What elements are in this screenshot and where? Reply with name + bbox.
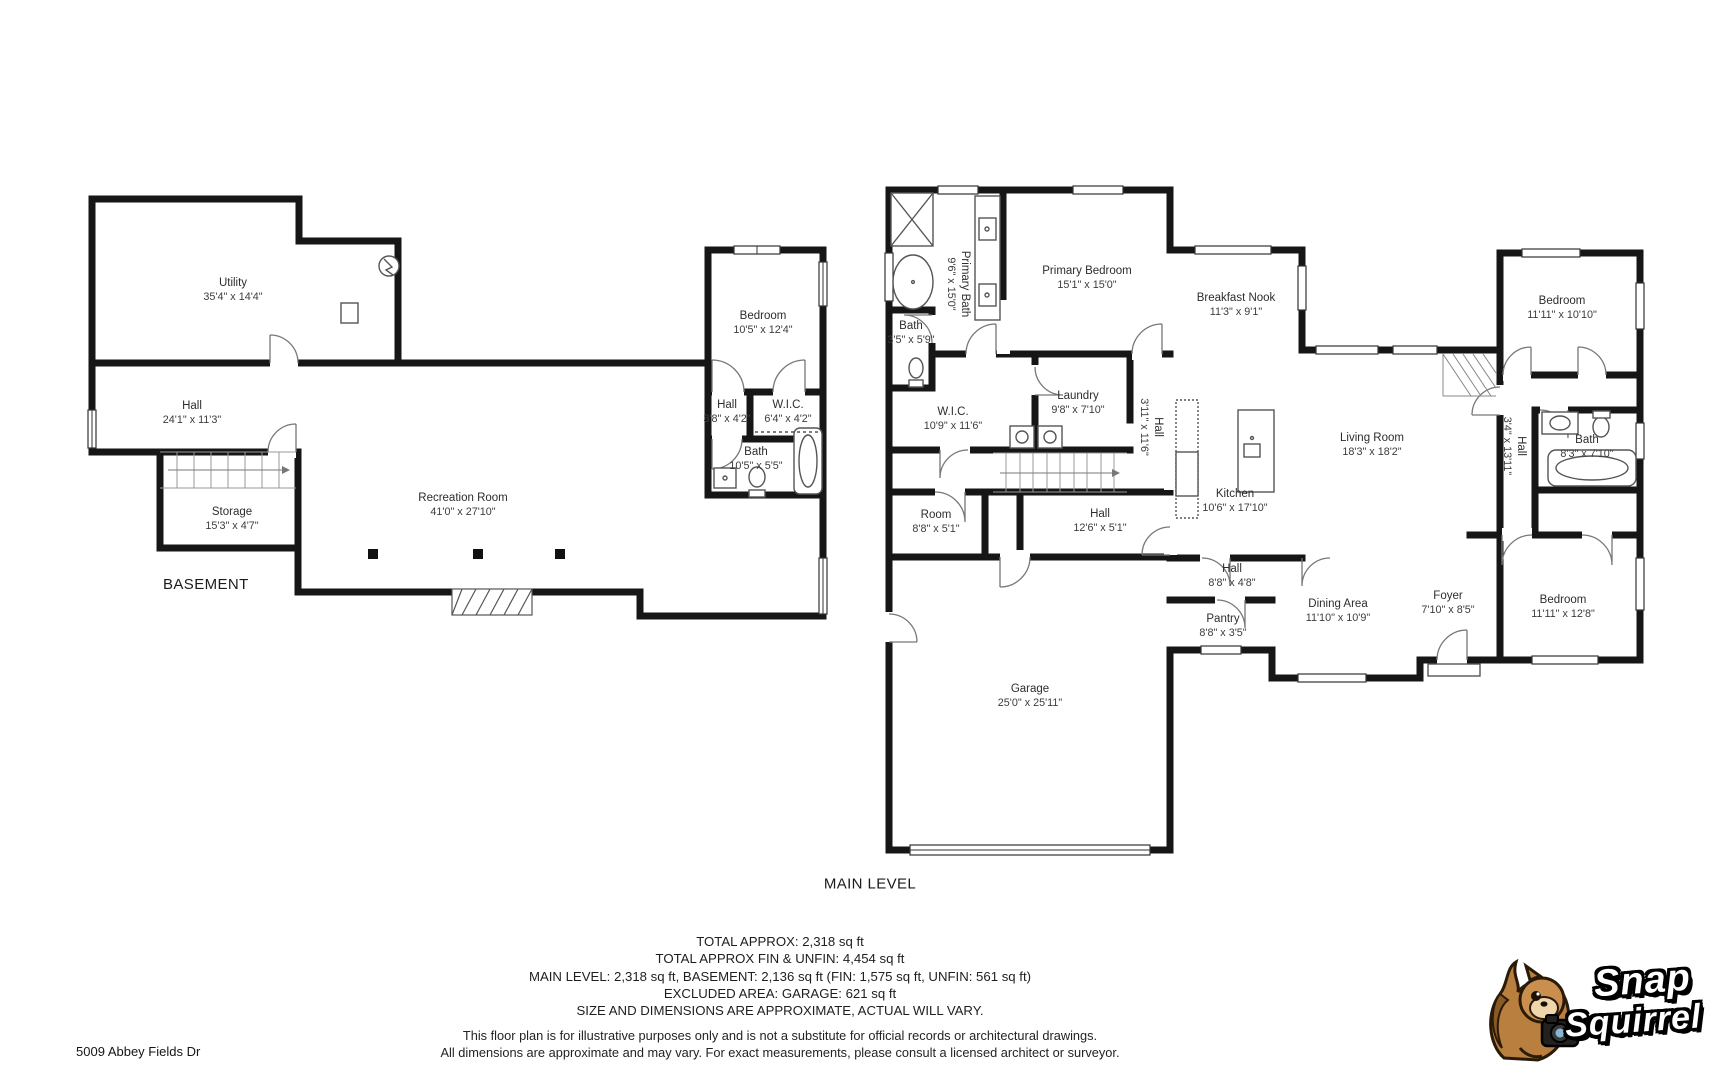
area-summary: TOTAL APPROX: 2,318 sq ft TOTAL APPROX F… — [529, 933, 1031, 1019]
room-label-living-room: Living Room18'3" x 18'2" — [1340, 431, 1404, 459]
summary-excluded: EXCLUDED AREA: GARAGE: 621 sq ft — [529, 985, 1031, 1002]
support-post-icons — [368, 549, 565, 559]
summary-approximate: SIZE AND DIMENSIONS ARE APPROXIMATE, ACT… — [529, 1002, 1031, 1019]
toilet-icon — [909, 358, 923, 378]
room-label-bedroom-top: Bedroom11'11" x 10'10" — [1527, 294, 1597, 322]
room-label-primary-bedroom: Primary Bedroom15'1" x 15'0" — [1042, 264, 1131, 292]
room-label-basement-wic: W.I.C.6'4" x 4'2" — [764, 398, 811, 426]
summary-total: TOTAL APPROX: 2,318 sq ft — [529, 933, 1031, 950]
disclaimer-line-2: All dimensions are approximate and may v… — [440, 1044, 1119, 1061]
main-level-walls — [889, 190, 1640, 850]
room-label-main-hall: Hall12'6" x 5'1" — [1073, 507, 1126, 535]
stairs-icon-main — [993, 453, 1127, 492]
logo-word-squirrel: Squirrel — [1563, 997, 1702, 1045]
room-label-main-hall-2: Hall8'8" x 4'8" — [1208, 562, 1255, 590]
room-label-bath-right: Bath8'3" x 7'10" — [1560, 433, 1613, 461]
window-icons — [88, 186, 1644, 855]
room-label-hall-right-vertical: Hall3'4" x 13'11" — [1500, 417, 1528, 475]
room-label-basement-bedroom: Bedroom10'5" x 12'4" — [733, 309, 792, 337]
room-label-laundry: Laundry9'8" x 7'10" — [1051, 389, 1104, 417]
room-label-room: Room8'8" x 5'1" — [912, 508, 959, 536]
basement-bulkhead-hatch — [452, 589, 532, 615]
room-label-recreation-room: Recreation Room41'0" x 27'10" — [418, 491, 507, 519]
disclaimer: This floor plan is for illustrative purp… — [440, 1027, 1119, 1061]
room-label-basement-hall-2: Hall3'8" x 4'2" — [703, 398, 750, 426]
disclaimer-line-1: This floor plan is for illustrative purp… — [440, 1027, 1119, 1044]
snap-squirrel-logo: Snap Squirrel — [1486, 942, 1701, 1070]
floorplan-drawing — [0, 0, 1729, 1080]
room-label-dining-area: Dining Area11'10" x 10'9" — [1306, 597, 1370, 625]
main-level-title: MAIN LEVEL — [824, 876, 916, 893]
room-label-main-hall-vertical: Hall3'11" x 11'6" — [1137, 398, 1165, 456]
room-label-kitchen: Kitchen10'6" x 17'10" — [1202, 487, 1267, 515]
summary-fin-unfin: TOTAL APPROX FIN & UNFIN: 4,454 sq ft — [529, 950, 1031, 967]
room-label-utility: Utility35'4" x 14'4" — [203, 276, 262, 304]
room-label-basement-hall: Hall24'1" x 11'3" — [163, 399, 221, 427]
porch-step — [1428, 664, 1480, 676]
range-icon — [1176, 452, 1198, 496]
basement-level-title: BASEMENT — [163, 576, 249, 593]
utility-box-icon — [341, 303, 358, 323]
room-label-main-bath: Bath3'5" x 5'9" — [887, 319, 934, 347]
room-label-garage: Garage25'0" x 25'11" — [998, 682, 1062, 710]
room-label-bedroom-bottom: Bedroom11'11" x 12'8" — [1531, 593, 1595, 621]
room-label-main-wic: W.I.C.10'9" x 11'6" — [924, 405, 982, 433]
room-label-pantry: Pantry8'8" x 3'5" — [1199, 612, 1246, 640]
floorplan-page: Utility35'4" x 14'4" Hall24'1" x 11'3" S… — [0, 0, 1729, 1080]
property-address: 5009 Abbey Fields Dr — [76, 1044, 200, 1059]
room-label-storage: Storage15'3" x 4'7" — [205, 505, 258, 533]
room-label-foyer: Foyer7'10" x 8'5" — [1421, 589, 1474, 617]
room-label-breakfast-nook: Breakfast Nook11'3" x 9'1" — [1197, 291, 1276, 319]
room-label-basement-bath: Bath10'5" x 5'5" — [729, 445, 782, 473]
room-label-primary-bath: Primary Bath9'6" x 15'0" — [944, 251, 972, 317]
summary-levels: MAIN LEVEL: 2,318 sq ft, BASEMENT: 2,136… — [529, 968, 1031, 985]
